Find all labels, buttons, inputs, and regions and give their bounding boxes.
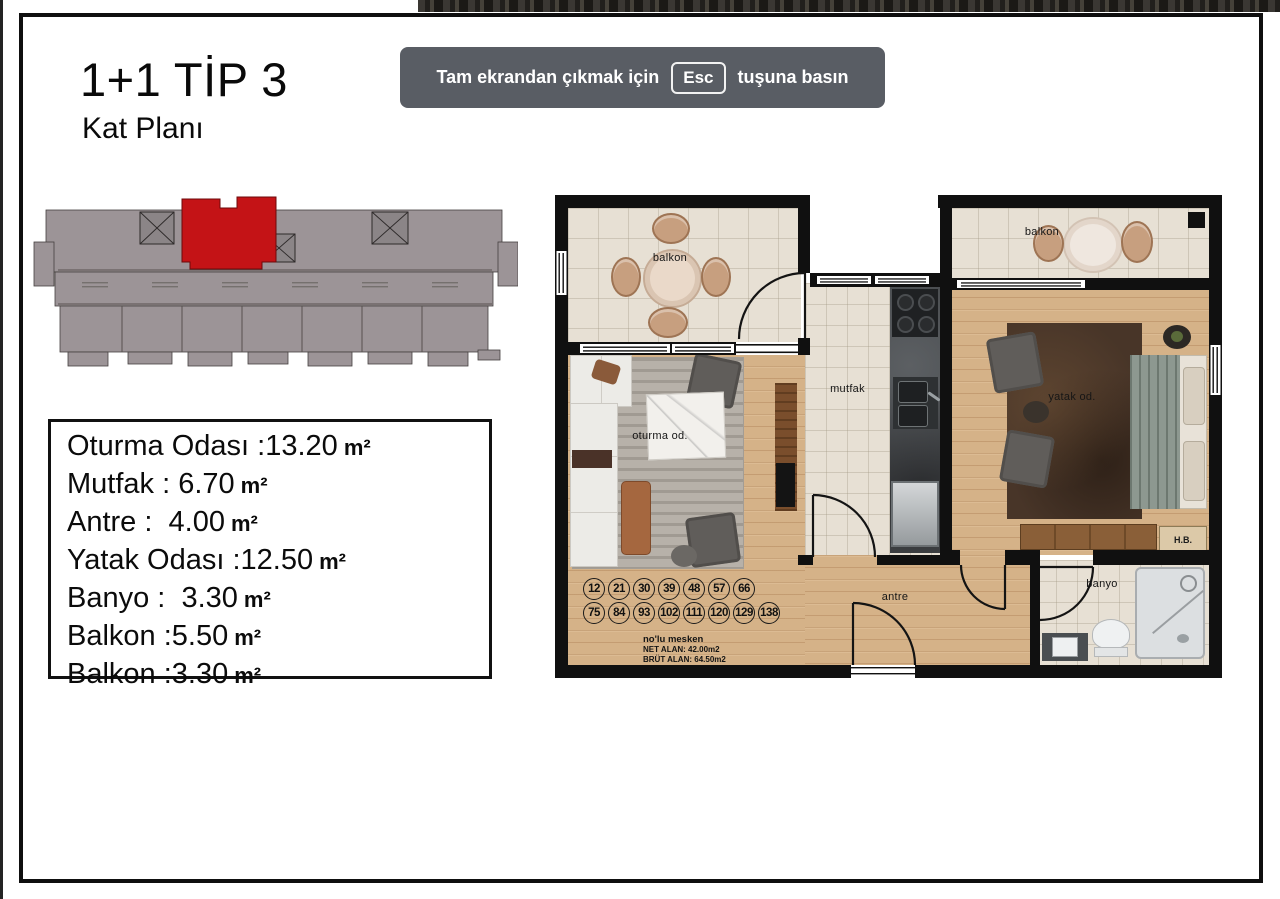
coffee-table-marble: [646, 392, 726, 461]
chair: [1121, 221, 1153, 263]
drain: [1177, 634, 1189, 643]
unit-info-brut: BRÜT ALAN: 64.50m2: [643, 655, 726, 665]
esc-key-hint: Esc: [671, 62, 725, 94]
floor-plan: H.B.: [555, 195, 1222, 684]
fullscreen-exit-banner: Tam ekrandan çıkmak için Esc tuşuna bası…: [400, 47, 885, 108]
shower: [1135, 567, 1205, 659]
room-row: Mutfak : 6.70m²: [67, 466, 489, 504]
unit-number: 129: [733, 602, 755, 624]
unit-number: 66: [733, 578, 755, 600]
sofa: [570, 403, 618, 567]
bed-blanket: [1130, 355, 1180, 509]
page-subtitle: Kat Planı: [82, 112, 204, 146]
chair: [652, 213, 690, 244]
room-row: Oturma Odası :13.20m²: [67, 428, 489, 466]
room-row: Antre : 4.00m²: [67, 504, 489, 542]
banner-text-before: Tam ekrandan çıkmak için: [436, 67, 659, 88]
page-title: 1+1 TİP 3: [80, 52, 288, 108]
toilet-tank: [1094, 647, 1128, 657]
room-label-kitchen: mutfak: [810, 383, 885, 395]
room-label-bath: banyo: [1067, 578, 1137, 590]
top-edge-artifact: [418, 0, 1280, 12]
unit-number: 12: [583, 578, 605, 600]
sink-basin: [898, 381, 928, 403]
fridge: [891, 481, 939, 547]
side-table: [572, 450, 612, 468]
unit-numbers-row-1: 12 21 30 39 48 57 66: [583, 578, 755, 600]
wardrobe: [1020, 524, 1157, 550]
pillow: [1183, 367, 1205, 425]
fullscreen-floorplan-page: 1+1 TİP 3 Kat Planı Tam ekrandan çıkmak …: [0, 0, 1280, 899]
left-edge-line: [0, 0, 3, 899]
unit-number: 30: [633, 578, 655, 600]
burner: [918, 316, 935, 333]
side-table-plant: [1023, 401, 1049, 423]
highlighted-unit: [182, 197, 276, 269]
unit-numbers-row-2: 75 84 93 102 111 120 129 138: [583, 602, 780, 624]
unit-number: 84: [608, 602, 630, 624]
unit-number: 39: [658, 578, 680, 600]
room-label-bedroom: yatak od.: [1027, 391, 1117, 403]
bench: [621, 481, 651, 555]
bath-sink-basin: [1052, 637, 1078, 657]
building-overview-plan: [30, 186, 518, 374]
room-row: Banyo : 3.30m²: [67, 580, 489, 618]
room-label-living: oturma od.: [610, 430, 710, 442]
burner: [897, 294, 914, 311]
armchair: [986, 331, 1045, 394]
tv: [776, 463, 795, 507]
burner: [918, 294, 935, 311]
sink-basin: [898, 405, 928, 427]
unit-number: 93: [633, 602, 655, 624]
room-label-balcony-left: balkon: [630, 252, 710, 264]
unit-number: 21: [608, 578, 630, 600]
room-area-list: Oturma Odası :13.20m² Mutfak : 6.70m² An…: [48, 419, 492, 679]
hb-closet: H.B.: [1159, 526, 1207, 554]
unit-number: 138: [758, 602, 780, 624]
room-label-hall: antre: [860, 591, 930, 603]
unit-info-title: no'lu mesken: [643, 634, 726, 645]
unit-number: 102: [658, 602, 680, 624]
armchair: [999, 429, 1055, 489]
room-row: Yatak Odası :12.50m²: [67, 542, 489, 580]
shower-head: [1180, 575, 1197, 592]
unit-info: no'lu mesken NET ALAN: 42.00m2 BRÜT ALAN…: [643, 634, 726, 664]
room-label-balcony-right: balkon: [1007, 226, 1077, 238]
unit-number: 57: [708, 578, 730, 600]
hall-floor: [805, 555, 1033, 665]
stool: [671, 545, 697, 567]
plant: [1171, 331, 1183, 342]
unit-number: 75: [583, 602, 605, 624]
unit-info-net: NET ALAN: 42.00m2: [643, 645, 726, 655]
room-row: Balkon :3.30m²: [67, 656, 489, 694]
unit-number: 111: [683, 602, 705, 624]
room-row: Balkon :5.50m²: [67, 618, 489, 656]
toilet: [1092, 619, 1130, 649]
hb-label: H.B.: [1174, 535, 1192, 545]
pillow: [1183, 441, 1205, 501]
shower-glass-line: [1152, 590, 1204, 634]
burner: [897, 316, 914, 333]
unit-number: 120: [708, 602, 730, 624]
banner-text-after: tuşuna basın: [738, 67, 849, 88]
unit-number: 48: [683, 578, 705, 600]
chair: [648, 307, 688, 338]
